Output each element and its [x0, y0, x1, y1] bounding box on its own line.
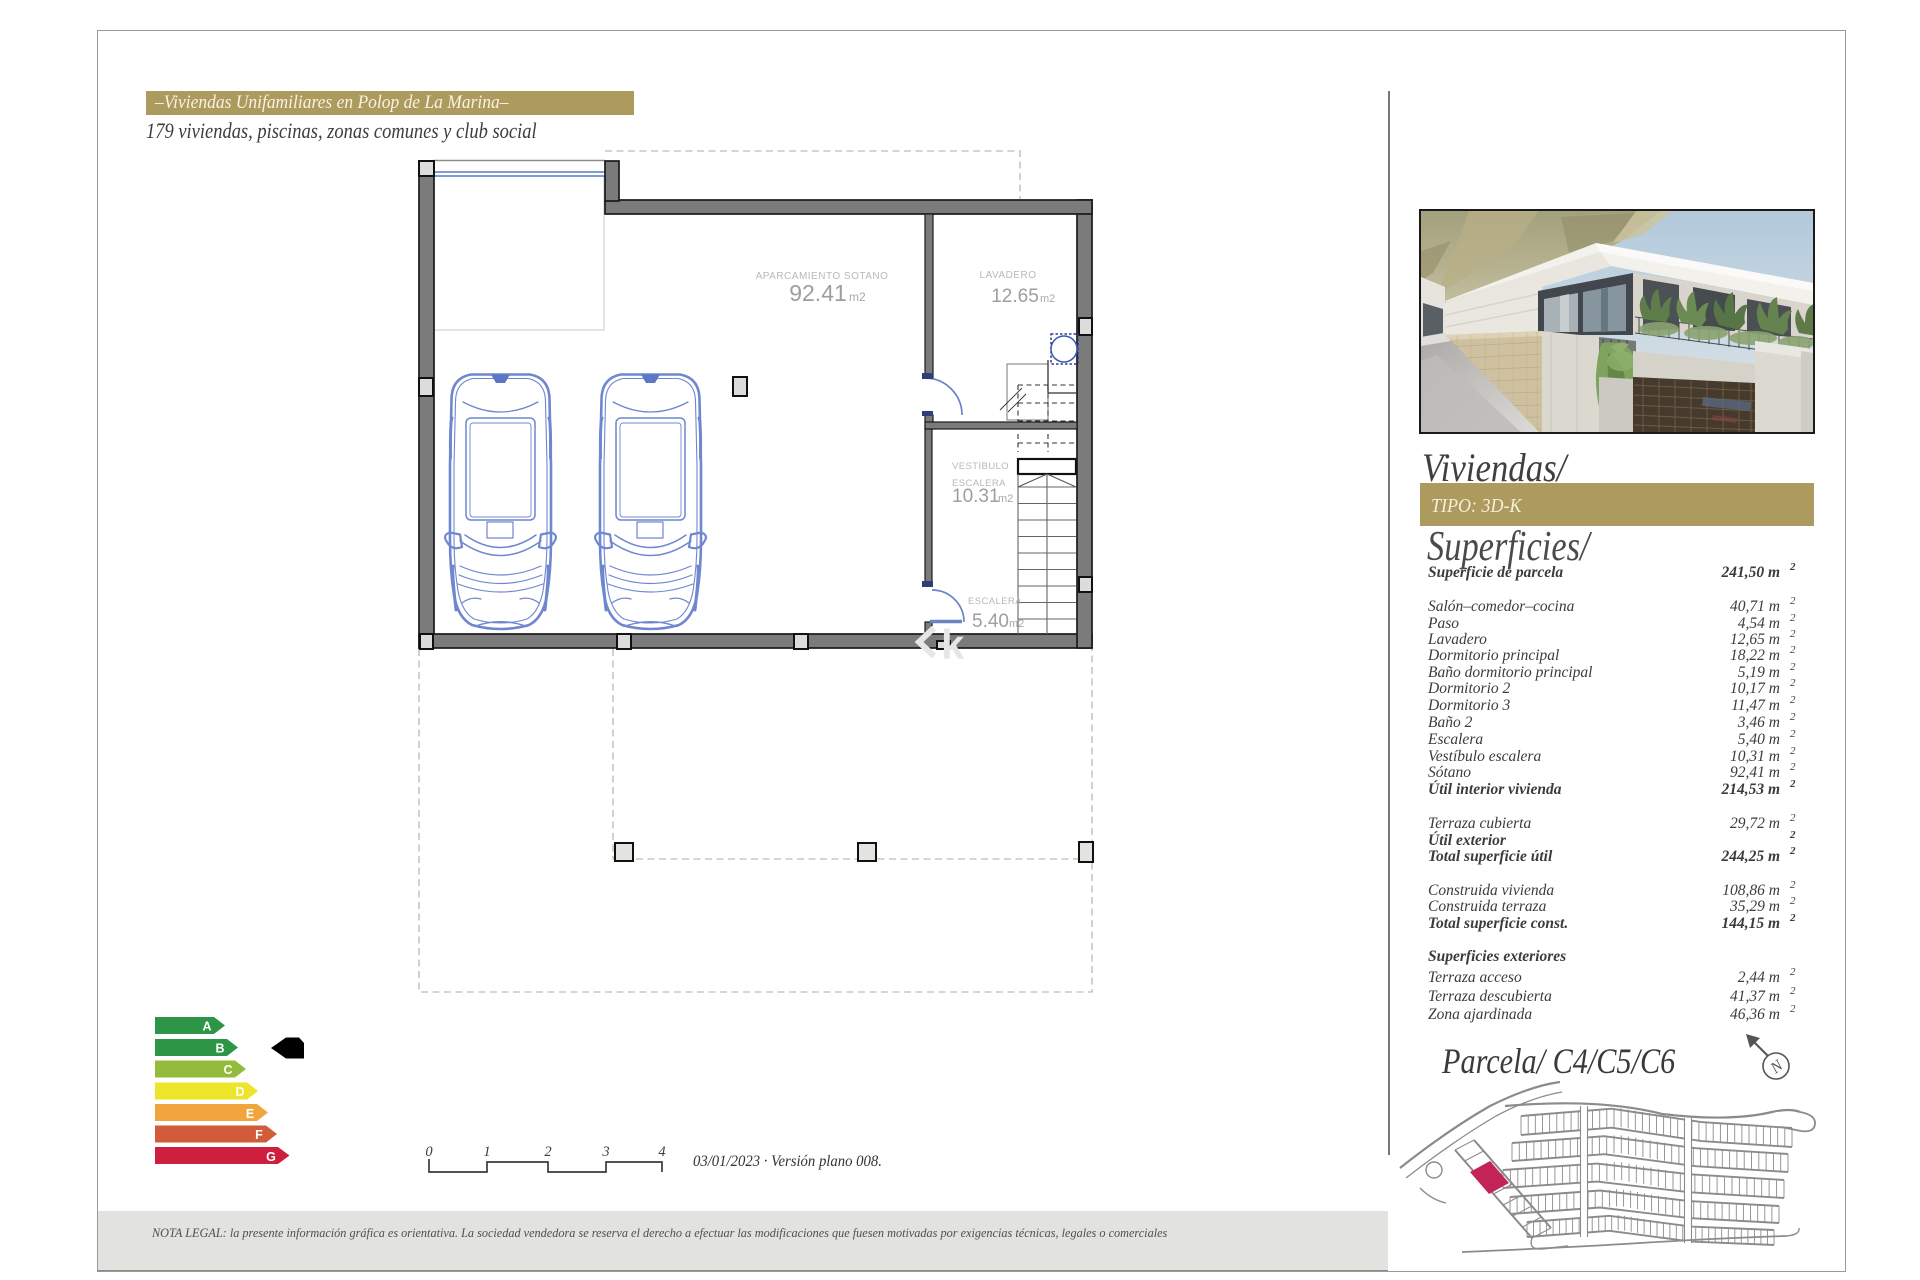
svg-text:E: E: [246, 1107, 254, 1121]
svg-text:A: A: [202, 1020, 211, 1034]
svg-text:2: 2: [544, 1144, 551, 1160]
svg-text:4: 4: [658, 1144, 665, 1160]
svg-text:m2: m2: [1009, 618, 1024, 630]
svg-text:F: F: [255, 1128, 263, 1142]
svg-text:m2: m2: [1040, 293, 1055, 305]
svg-text:D: D: [235, 1085, 244, 1099]
svg-text:m2: m2: [998, 493, 1013, 505]
svg-text:B: B: [215, 1042, 224, 1056]
svg-text:k: k: [941, 621, 965, 668]
svg-text:3: 3: [601, 1144, 609, 1160]
svg-text:VESTIBULO: VESTIBULO: [952, 461, 1009, 472]
svg-text:LAVADERO: LAVADERO: [980, 270, 1037, 281]
svg-text:m2: m2: [849, 290, 866, 304]
svg-text:92.41: 92.41: [789, 280, 847, 306]
svg-text:0: 0: [425, 1144, 433, 1160]
svg-text:G: G: [266, 1150, 276, 1164]
svg-text:C: C: [223, 1063, 232, 1077]
svg-text:10.31: 10.31: [952, 486, 1000, 507]
svg-text:5.40: 5.40: [972, 611, 1009, 632]
svg-text:1: 1: [483, 1144, 490, 1160]
svg-text:ESCALERA: ESCALERA: [968, 596, 1022, 607]
svg-text:12.65: 12.65: [991, 286, 1039, 307]
